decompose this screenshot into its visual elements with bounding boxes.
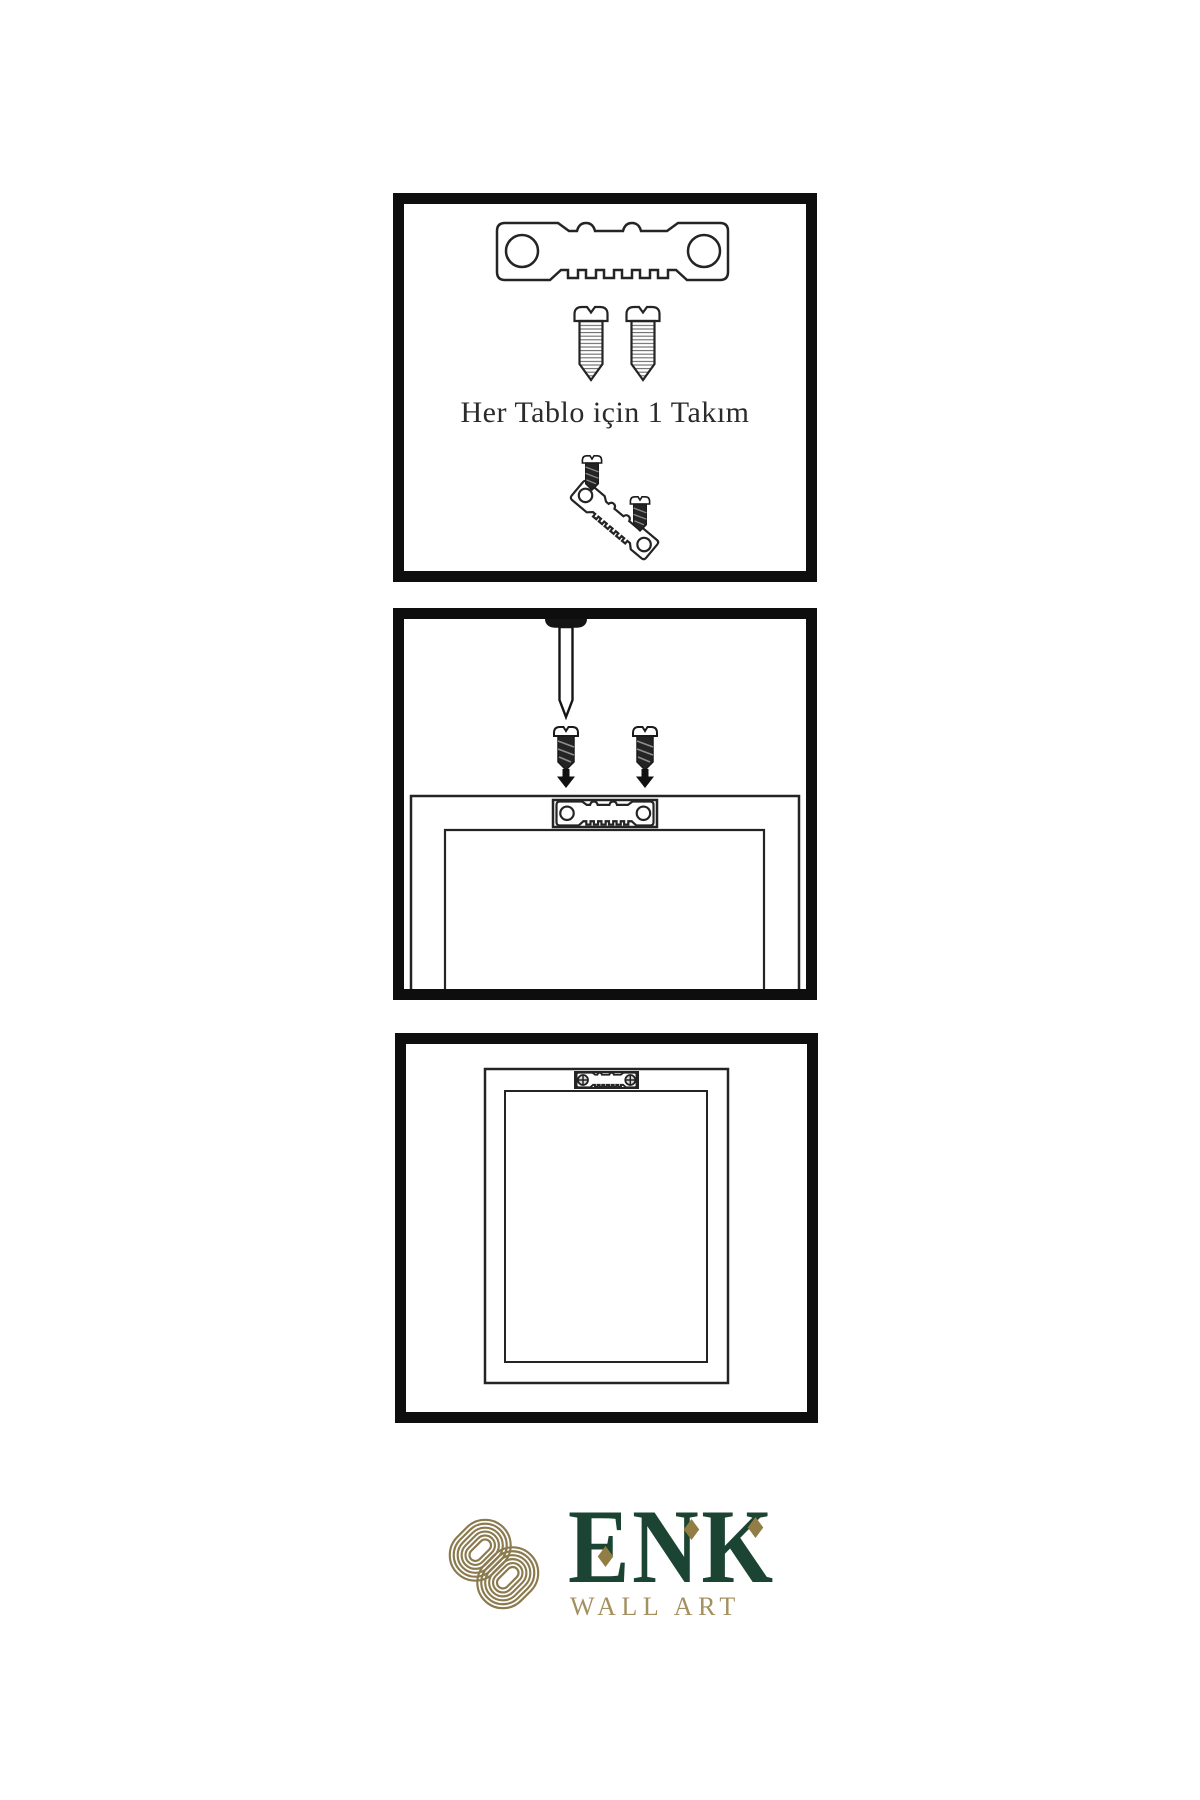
nail-icon	[545, 619, 587, 717]
step-panel-install-hanger	[393, 608, 817, 1000]
kit-caption: Her Tablo için 1 Takım	[404, 398, 806, 428]
screw-head-icon	[625, 1075, 635, 1085]
instruction-sheet: Her Tablo için 1 Takım	[0, 0, 1200, 1800]
screw-icon	[633, 727, 657, 770]
brand-logo: ENK WALL ART	[435, 1500, 780, 1640]
frame-canvas-icon	[505, 1091, 707, 1362]
hardware-kit-drawing	[404, 204, 806, 571]
knot-emblem-icon	[435, 1500, 553, 1626]
sawtooth-hanger-icon	[497, 223, 728, 280]
frame-canvas-icon	[445, 830, 764, 989]
down-arrow-icon	[636, 769, 654, 788]
screw-icon	[627, 307, 660, 380]
screw-head-icon	[578, 1075, 588, 1085]
install-drawing	[404, 619, 806, 989]
brand-subtitle: WALL ART	[570, 1594, 741, 1620]
screw-icon	[575, 307, 608, 380]
installed-hanger-icon	[557, 802, 654, 826]
down-arrow-icon	[557, 769, 575, 788]
step-panel-hardware-kit: Her Tablo için 1 Takım	[393, 193, 817, 582]
screw-icon	[554, 727, 578, 770]
mounted-drawing	[406, 1044, 807, 1412]
brand-name: ENK	[568, 1494, 776, 1600]
step-panel-mounted	[395, 1033, 818, 1423]
